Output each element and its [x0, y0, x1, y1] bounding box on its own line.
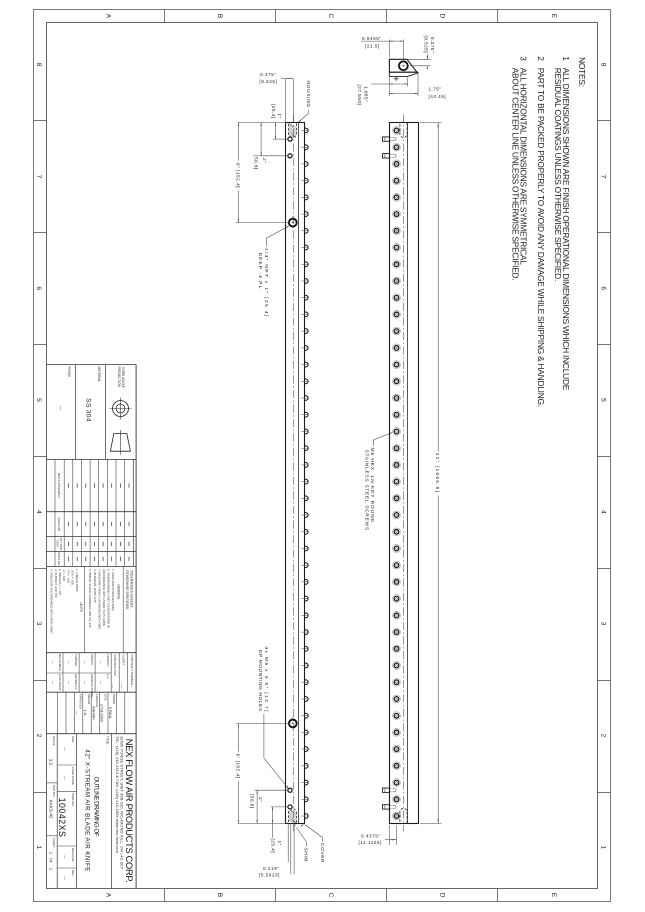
svg-text:1": 1" — [277, 113, 282, 118]
svg-text:[50.8]: [50.8] — [250, 794, 255, 809]
svg-text:2": 2" — [258, 797, 263, 802]
svg-text:B: B — [216, 14, 223, 19]
svg-text:[27.559]: [27.559] — [357, 85, 362, 106]
svg-text:B: B — [216, 893, 223, 898]
svg-text:RESIDUAL COATINGS UNLESS OTHER: RESIDUAL COATINGS UNLESS OTHERWISE SPECI… — [553, 68, 563, 281]
svg-text:SHEET: SHEET — [52, 838, 56, 848]
svg-text:[50.8]: [50.8] — [253, 155, 258, 170]
svg-text:27/11/2003: 27/11/2003 — [100, 704, 104, 722]
svg-text:10042XS: 10042XS — [57, 798, 67, 838]
svg-text:[11.1125]: [11.1125] — [359, 840, 382, 845]
svg-text:TOLERANCES UNLESS: TOLERANCES UNLESS — [130, 570, 134, 608]
svg-text:1": 1" — [277, 841, 282, 846]
svg-text:DRAWN: DRAWN — [112, 694, 116, 704]
svg-text:DWG NO: DWG NO — [71, 793, 75, 806]
svg-text:42" [1066.8]: 42" [1066.8] — [435, 453, 440, 493]
svg-text:1/4" NPT x 1" [25.4]: 1/4" NPT x 1" [25.4] — [263, 248, 269, 318]
svg-text:CAD NO: CAD NO — [52, 785, 56, 797]
svg-text:3: 3 — [518, 56, 528, 61]
svg-text:L.A.: L.A. — [83, 710, 87, 716]
svg-text:OUTLINE DRAWING OF: OUTLINE DRAWING OF — [92, 777, 99, 837]
svg-text:NEX FLOW AIR PRODUCTS CORP.: NEX FLOW AIR PRODUCTS CORP. — [124, 739, 134, 883]
svg-text:[9.525]: [9.525] — [424, 35, 429, 53]
svg-text:CLIENT: CLIENT — [122, 655, 126, 666]
svg-text:[21.5]: [21.5] — [365, 44, 380, 49]
svg-text:6" [152.4]: 6" [152.4] — [235, 754, 240, 779]
svg-text:PROJECTION: PROJECTION — [117, 367, 121, 388]
svg-text:5: 5 — [600, 398, 607, 402]
svg-text:4x M6 x 0.5" [12.7]: 4x M6 x 0.5" [12.7] — [263, 646, 269, 712]
svg-text:ELECTRICAL: ELECTRICAL — [58, 674, 62, 691]
svg-text:E: E — [550, 14, 557, 19]
svg-text:STRESS: STRESS — [90, 654, 94, 665]
svg-text:[9.525]: [9.525] — [259, 79, 277, 84]
svg-text:APPROVED: APPROVED — [78, 694, 82, 709]
svg-text:COVER: COVER — [319, 843, 325, 863]
svg-text:4: 4 — [35, 510, 42, 514]
svg-text:[5.5623]: [5.5623] — [259, 872, 280, 877]
svg-text:8: 8 — [600, 63, 607, 67]
svg-text:A: A — [105, 893, 112, 898]
svg-text:MECHANICAL: MECHANICAL — [58, 654, 62, 672]
svg-text:7: 7 — [600, 175, 607, 179]
svg-text:[44.45]: [44.45] — [429, 94, 447, 99]
svg-text:2. DIMENSIONING AND TOLERANCIN: 2. DIMENSIONING AND TOLERANCING IN — [107, 569, 111, 628]
svg-text:1.75": 1.75" — [429, 87, 442, 92]
svg-text:42" X-STREAM AIR BLADE AIR KNI: 42" X-STREAM AIR BLADE AIR KNIFE — [83, 749, 90, 872]
svg-text:D: D — [439, 893, 446, 898]
svg-text:CONTRACT NUMBER —: CONTRACT NUMBER — — [130, 655, 134, 689]
svg-text:CHECKED: CHECKED — [95, 694, 99, 707]
svg-text:2: 2 — [536, 56, 546, 61]
svg-text:1: 1 — [561, 56, 571, 61]
svg-text:MATERIAL: MATERIAL — [97, 367, 101, 383]
svg-text:ABOUT CENTER LINE UNLESS OTHER: ABOUT CENTER LINE UNLESS OTHERWISE SPECI… — [511, 68, 521, 281]
svg-text:M6 HEX. LN KEY ROUND: M6 HEX. LN KEY ROUND — [369, 448, 375, 523]
svg-text:ASHISH: ASHISH — [91, 706, 95, 720]
svg-text:—: — — [63, 747, 68, 751]
svg-text:CAGE CODE: CAGE CODE — [71, 767, 75, 785]
svg-text:—: — — [63, 876, 68, 880]
svg-text:0.8465": 0.8465" — [362, 36, 382, 41]
svg-text:E.A.: E.A. — [106, 674, 110, 679]
svg-text:—: — — [58, 406, 63, 411]
svg-text:HOUSING: HOUSING — [305, 81, 311, 108]
svg-text:C: C — [327, 14, 334, 19]
svg-text:3: 3 — [35, 622, 42, 626]
svg-text:C: C — [327, 893, 334, 898]
svg-text:3: 3 — [600, 622, 607, 626]
svg-text:1.085": 1.085" — [363, 86, 368, 102]
svg-text:USED ON: USED ON — [57, 517, 61, 531]
svg-text:5. BREAK SHARP CORNERS .005 TO: 5. BREAK SHARP CORNERS .005 TO .015 — [88, 569, 92, 628]
svg-text:4. INTERNAL RADII .015: 4. INTERNAL RADII .015 — [93, 569, 97, 603]
svg-text:—: — — [75, 711, 79, 715]
svg-text:DESIGN: DESIGN — [87, 694, 91, 704]
svg-text:2": 2" — [262, 158, 267, 163]
svg-text:NOTES:: NOTES: — [577, 57, 587, 87]
svg-text:4. HOLES IN ACCORDANCE WITH AN: 4. HOLES IN ACCORDANCE WITH ANSI 10587 — [50, 569, 54, 634]
svg-text:OF: OF — [49, 858, 53, 863]
svg-text:STAINLESS STEEL SCREWS: STAINLESS STEEL SCREWS — [364, 450, 370, 531]
svg-text:CONTRACTOR: CONTRACTOR — [113, 655, 117, 677]
svg-text:REV: REV — [71, 870, 75, 876]
svg-text:8: 8 — [35, 63, 42, 67]
svg-text:0.375": 0.375" — [260, 72, 276, 77]
svg-text:0.219": 0.219" — [263, 866, 279, 871]
svg-text:PROJECT: PROJECT — [106, 654, 110, 667]
svg-text:—: — — [63, 776, 68, 780]
svg-text:SIZE: SIZE — [71, 736, 75, 743]
svg-text:MATERIALS: MATERIALS — [74, 674, 78, 689]
svg-text:6" [152.4]: 6" [152.4] — [235, 163, 240, 188]
svg-text:6: 6 — [35, 286, 42, 290]
svg-text:SS 304: SS 304 — [85, 398, 92, 421]
svg-text:1. DIMS ARE IN INCHES (MM): 1. DIMS ARE IN INCHES (MM) — [111, 569, 115, 611]
svg-text:0.4375": 0.4375" — [361, 833, 381, 838]
svg-text:DP MOUNTING HOLES: DP MOUNTING HOLES — [257, 650, 263, 712]
svg-text:ASSY: ASSY — [56, 540, 60, 548]
svg-text:E: E — [550, 893, 557, 898]
svg-text:PART NO: PART NO — [57, 552, 61, 566]
svg-text:A: A — [105, 14, 112, 19]
svg-text:TITLE: TITLE — [106, 736, 110, 745]
svg-text:5: 5 — [35, 398, 42, 402]
svg-text:TEL: (416) 410-1313 & FAX: (41: TEL: (416) 410-1313 & FAX: (416) 410-180… — [115, 736, 120, 853]
svg-text:SHIM: SHIM — [303, 848, 309, 862]
svg-text:1: 1 — [600, 845, 607, 849]
svg-text:UNITS: UNITS — [79, 602, 83, 612]
svg-text:OTHERWISE SPECIFIED: OTHERWISE SPECIFIED — [125, 570, 129, 610]
svg-text:1:1: 1:1 — [49, 759, 54, 766]
svg-text:S.PAUL: S.PAUL — [108, 707, 112, 720]
svg-text:DATE: DATE — [104, 694, 108, 701]
svg-text:RELEASE: RELEASE — [71, 848, 75, 862]
svg-text:SCALE: SCALE — [52, 736, 56, 746]
svg-text:—: — — [63, 855, 68, 859]
svg-text:0.375": 0.375" — [430, 37, 435, 53]
svg-text:1: 1 — [35, 845, 42, 849]
svg-text:[25.4]: [25.4] — [271, 839, 276, 854]
svg-text:3. MACHINE FINISH 125 MICRO IN: 3. MACHINE FINISH 125 MICRO INCH RMS — [97, 569, 101, 629]
svg-text:PART TO BE PACKED PROPERLY TO: PART TO BE PACKED PROPERLY TO AVOID ANY … — [536, 68, 546, 407]
svg-text:7: 7 — [35, 175, 42, 179]
svg-text:D: D — [439, 14, 446, 19]
svg-text:NEXT ASSEMBLY: NEXT ASSEMBLY — [57, 473, 61, 498]
svg-text:[25.4]: [25.4] — [271, 104, 276, 119]
svg-text:THERMAL: THERMAL — [74, 654, 78, 667]
svg-text:2: 2 — [600, 734, 607, 738]
svg-text:ACCORDANCE WITH ASME Y14.5 (19: ACCORDANCE WITH ASME Y14.5 (1982) — [102, 569, 106, 626]
svg-text:FINISH: FINISH — [67, 367, 71, 378]
svg-text:DEEP -4 PL.: DEEP -4 PL. — [257, 253, 263, 292]
svg-text:GENERAL: GENERAL — [117, 584, 121, 599]
svg-text:6: 6 — [600, 286, 607, 290]
svg-text:XAKS-42: XAKS-42 — [48, 800, 53, 819]
svg-text:4: 4 — [600, 510, 607, 514]
svg-text:2: 2 — [35, 734, 42, 738]
